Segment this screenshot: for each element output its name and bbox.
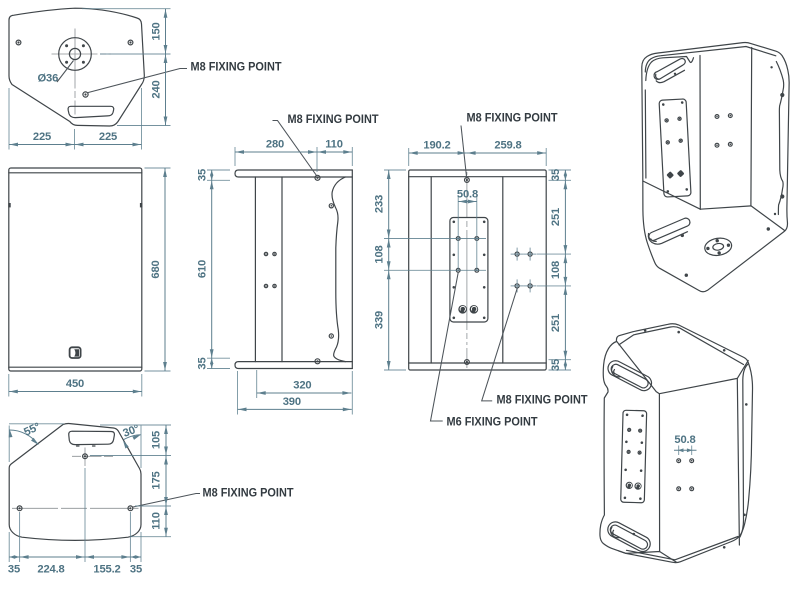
svg-text:110: 110	[151, 512, 163, 530]
svg-text:155.2: 155.2	[93, 564, 120, 576]
svg-text:190.2: 190.2	[423, 140, 450, 152]
svg-text:610: 610	[197, 260, 209, 278]
svg-text:50.8: 50.8	[457, 189, 478, 201]
svg-text:175: 175	[151, 471, 163, 489]
svg-text:251: 251	[550, 314, 562, 332]
svg-text:339: 339	[374, 311, 386, 329]
svg-text:259.8: 259.8	[494, 140, 521, 152]
svg-text:105: 105	[151, 431, 163, 449]
svg-text:320: 320	[293, 380, 311, 392]
svg-text:233: 233	[374, 195, 386, 213]
svg-text:Ø36: Ø36	[38, 73, 59, 85]
svg-text:M8 FIXING POINT: M8 FIXING POINT	[191, 62, 282, 74]
svg-text:35: 35	[550, 359, 562, 371]
svg-text:150: 150	[151, 22, 163, 40]
svg-text:450: 450	[66, 378, 84, 390]
svg-text:280: 280	[266, 139, 284, 151]
svg-text:108: 108	[374, 245, 386, 263]
svg-text:35: 35	[8, 564, 20, 576]
svg-text:224.8: 224.8	[37, 564, 64, 576]
svg-text:M8 FIXING POINT: M8 FIXING POINT	[203, 488, 294, 500]
svg-text:M6 FIXING POINT: M6 FIXING POINT	[447, 417, 538, 429]
svg-text:35: 35	[197, 169, 209, 181]
svg-text:110: 110	[325, 139, 343, 151]
svg-text:251: 251	[550, 208, 562, 226]
svg-text:35: 35	[130, 564, 142, 576]
svg-text:M8 FIXING POINT: M8 FIXING POINT	[288, 114, 379, 126]
svg-text:35: 35	[197, 357, 209, 369]
svg-text:225: 225	[99, 131, 117, 143]
svg-text:M8 FIXING POINT: M8 FIXING POINT	[467, 113, 558, 125]
svg-text:390: 390	[283, 396, 301, 408]
svg-text:108: 108	[550, 261, 562, 279]
svg-text:M8 FIXING POINT: M8 FIXING POINT	[497, 395, 588, 407]
svg-text:35: 35	[550, 169, 562, 181]
svg-text:240: 240	[151, 80, 163, 98]
svg-text:680: 680	[150, 260, 162, 278]
svg-text:50.8: 50.8	[674, 434, 695, 446]
svg-text:225: 225	[33, 131, 51, 143]
